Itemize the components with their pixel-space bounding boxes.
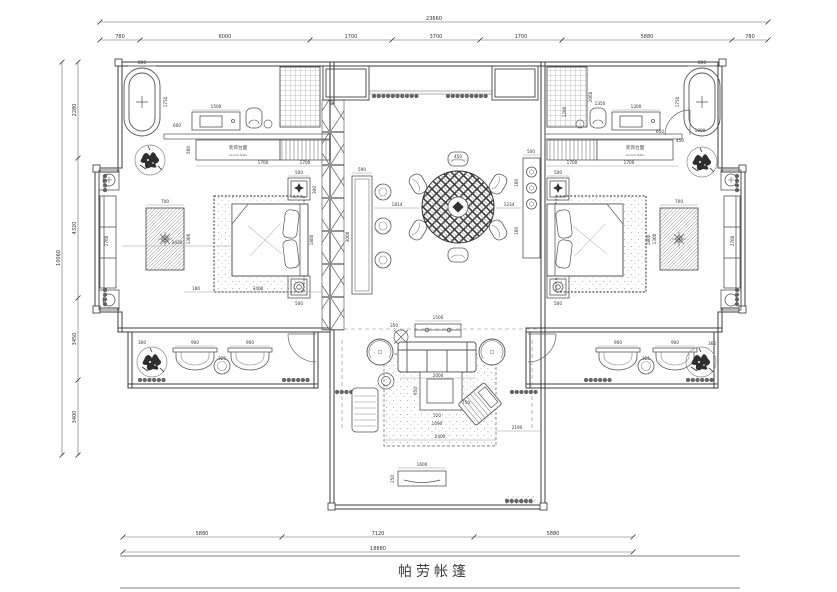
dim-label: 300 <box>138 340 146 345</box>
console-right-wall <box>523 158 540 258</box>
floor-plan-sheet: 23660 780 6000 1700 3700 1700 5880 780 5… <box>0 0 837 592</box>
dim-label: 3700 <box>430 34 443 40</box>
dim-label: 4320 <box>72 222 78 235</box>
bed-area-right <box>547 196 646 292</box>
dim-label: 1814 <box>392 202 403 207</box>
dim-label: 1500 <box>211 104 222 109</box>
dim-label: 700 <box>161 199 169 204</box>
sofa <box>398 342 476 372</box>
dim-label: 2190 <box>512 425 523 430</box>
dim-label: 3400 <box>253 286 264 291</box>
sofa-console <box>415 324 461 337</box>
swivel-chair-left <box>367 339 393 365</box>
living-room <box>352 324 505 446</box>
dim-label: 18880 <box>370 546 386 552</box>
dim-label: 300 <box>312 186 317 194</box>
dim-label: 180 <box>192 286 200 291</box>
dim-label: 1700 <box>258 160 269 165</box>
dim-label: 1090 <box>432 421 443 426</box>
floor-plan-drawing: 23660 780 6000 1700 3700 1700 5880 780 5… <box>0 0 837 592</box>
dim-label: 7120 <box>372 531 385 537</box>
dim-label: 5880 <box>641 34 654 40</box>
bar-stool <box>375 218 391 234</box>
dim-label: 900 <box>191 340 199 345</box>
dresser-left <box>192 112 240 130</box>
dim-label: 1700 <box>624 160 635 165</box>
dim-label: 2400 <box>435 434 446 439</box>
dim-label: 2430 <box>172 240 183 245</box>
shower-left <box>280 67 320 127</box>
dim-label: 650 <box>413 387 418 395</box>
dim-label: 3000 <box>345 231 350 242</box>
bar-stool <box>375 184 391 200</box>
dim-label: 450 <box>676 138 684 143</box>
dim-label: 6000 <box>219 34 232 40</box>
dim-label: 3450 <box>72 333 78 346</box>
dim-label: 600 <box>173 123 181 128</box>
dim-label: 2000 <box>433 373 444 378</box>
dim-label: 500 <box>295 170 303 175</box>
dim-label: 900 <box>671 340 679 345</box>
dim-label: 590 <box>358 167 366 172</box>
dim-label: 750 <box>462 400 470 405</box>
nightstand-right-top <box>547 178 569 200</box>
dim-label: 1750 <box>163 96 168 107</box>
counter-left <box>164 134 330 139</box>
bathroom-right <box>596 347 716 377</box>
dim-label: 700 <box>675 199 683 204</box>
dim-label: 325 <box>218 356 226 361</box>
dim-label: 250 <box>390 475 395 483</box>
dim-label: 1300 <box>631 104 642 109</box>
accent-table-label-en: Accent Table <box>229 153 247 157</box>
dim-label: 1350 <box>595 101 606 106</box>
bathroom-left <box>137 347 272 377</box>
dim-label: 650 <box>656 129 664 134</box>
bar-console <box>352 176 372 294</box>
porch-console <box>398 471 446 486</box>
chaise-left <box>352 388 378 432</box>
bed-area-left <box>214 196 308 292</box>
accent-table-label-cn: 装饰台面 <box>229 144 248 151</box>
dim-label: 23660 <box>426 16 442 22</box>
dim-label: 780 <box>115 34 125 40</box>
project-title: 帕劳帐篷 <box>398 564 470 580</box>
dim-label: 1500 <box>433 315 444 320</box>
dim-label: 160 <box>514 179 519 187</box>
dim-label: 2700 <box>730 235 735 246</box>
bathtub-right <box>684 68 720 136</box>
dim-label: 350 <box>390 323 398 328</box>
dim-label: 5880 <box>547 531 560 537</box>
balcony-left <box>99 170 119 310</box>
lattice-screen-left <box>322 100 344 330</box>
dim-label: 1700 <box>300 160 311 165</box>
side-table-right <box>660 208 698 270</box>
dim-label: 1200 <box>562 106 567 117</box>
dim-label: 365 <box>708 341 716 346</box>
dim-label: 500 <box>295 301 303 306</box>
accent-table-label-cn: 装饰台面 <box>626 144 645 151</box>
dim-label: 2060 <box>588 91 593 102</box>
swivel-chair-right <box>479 339 505 365</box>
dim-label: 780 <box>745 34 755 40</box>
accent-table-left: 装饰台面 Accent Table <box>196 140 330 160</box>
dim-label: 1800 <box>646 234 651 245</box>
side-table-left <box>146 208 184 270</box>
dim-label: 1300 <box>186 233 191 244</box>
nightstand-left-top <box>288 178 310 200</box>
entry-threshold <box>369 91 492 94</box>
dim-label: 800 <box>138 60 146 65</box>
title-block: 帕劳帐篷 <box>120 556 740 588</box>
dim-label: 10060 <box>56 250 62 266</box>
dim-label: 5880 <box>196 531 209 537</box>
dim-label: 1750 <box>675 96 680 107</box>
accent-table-right: 装饰台面 Accent Table <box>547 140 673 160</box>
dresser-chair-left <box>246 108 262 128</box>
bathtub-left <box>124 68 160 136</box>
dim-label: 1600 <box>417 462 428 467</box>
dim-label: 450 <box>454 154 462 159</box>
dim-label: 1800 <box>309 234 314 245</box>
dim-label: 900 <box>246 340 254 345</box>
dim-label: 520 <box>433 413 441 418</box>
bar-stool <box>375 252 391 268</box>
dim-label: 1234 <box>504 202 515 207</box>
dim-label: 900 <box>614 340 622 345</box>
dresser-right <box>612 112 660 130</box>
counter-right <box>545 134 682 139</box>
dim-label: 500 <box>554 170 562 175</box>
dim-label: 800 <box>698 60 706 65</box>
dim-label: 500 <box>527 149 535 154</box>
dim-label: 1700 <box>345 34 358 40</box>
dim-label: 1700 <box>567 160 578 165</box>
plant-right-top <box>687 147 717 177</box>
mirror-left <box>264 120 272 128</box>
dim-label: 2280 <box>72 104 78 117</box>
dim-label: 1000 <box>695 128 706 133</box>
dim-label: 2700 <box>104 235 109 246</box>
dresser-chair-right <box>590 108 606 128</box>
accent-table-label-en: Accent Table <box>626 153 644 157</box>
dim-label: 1700 <box>515 34 528 40</box>
dim-label: 3400 <box>72 411 78 424</box>
shower-right <box>547 67 587 127</box>
dim-label: 160 <box>514 227 519 235</box>
dim-label: 325 <box>642 356 650 361</box>
dim-label: 500 <box>186 146 191 154</box>
dim-label: 1300 <box>652 233 657 244</box>
plant-left-top <box>135 145 165 175</box>
dim-label: 500 <box>554 301 562 306</box>
entry-closet-right <box>492 66 538 100</box>
dining-table <box>407 152 509 262</box>
